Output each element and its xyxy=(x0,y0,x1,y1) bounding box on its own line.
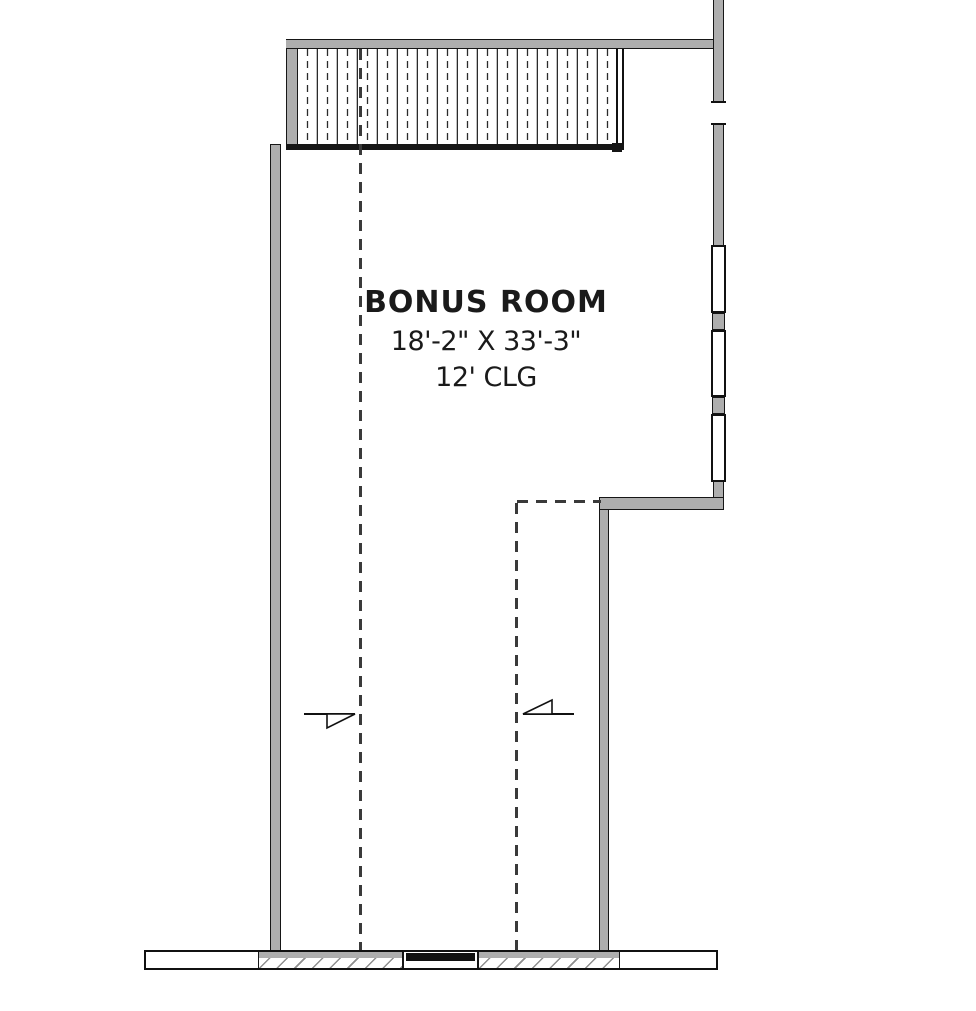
ceiling-break-line-left xyxy=(359,49,362,950)
bottom-wall-window xyxy=(403,952,478,968)
ceiling-break-line-right xyxy=(515,503,518,950)
bottom-wall xyxy=(144,950,718,970)
room-ceiling-height: 12' CLG xyxy=(326,360,646,396)
stair-newel-mark xyxy=(612,143,622,152)
room-dimensions: 18'-2" X 33'-3" xyxy=(326,324,646,360)
bottom-window-glass xyxy=(406,953,475,961)
left-wall xyxy=(270,144,281,950)
slope-arrow-left-pointing-icon xyxy=(519,696,577,730)
window-spacer xyxy=(712,313,725,330)
right-wall-opening xyxy=(711,101,726,125)
room-name: BONUS ROOM xyxy=(326,285,646,321)
stairs xyxy=(298,49,618,144)
slope-arrow-right-pointing-icon xyxy=(302,698,360,732)
stair-treads xyxy=(298,49,618,144)
stair-bottom-wall xyxy=(286,144,624,150)
window xyxy=(711,414,726,482)
window xyxy=(711,245,726,313)
bottom-wall-hatched-left xyxy=(258,952,403,968)
window xyxy=(711,330,726,397)
floor-plan: BONUS ROOM 18'-2" X 33'-3" 12' CLG xyxy=(0,0,976,1011)
stair-left-wall xyxy=(286,49,298,144)
bottom-wall-hatched-right xyxy=(478,952,620,968)
window-spacer xyxy=(712,397,725,414)
room-label: BONUS ROOM 18'-2" X 33'-3" 12' CLG xyxy=(326,285,646,396)
stair-top-wall xyxy=(286,39,724,49)
right-step-wall xyxy=(599,497,724,510)
right-wall-lower xyxy=(599,510,609,950)
stair-right-wall xyxy=(616,49,624,144)
ceiling-break-line-horizontal xyxy=(517,500,601,503)
